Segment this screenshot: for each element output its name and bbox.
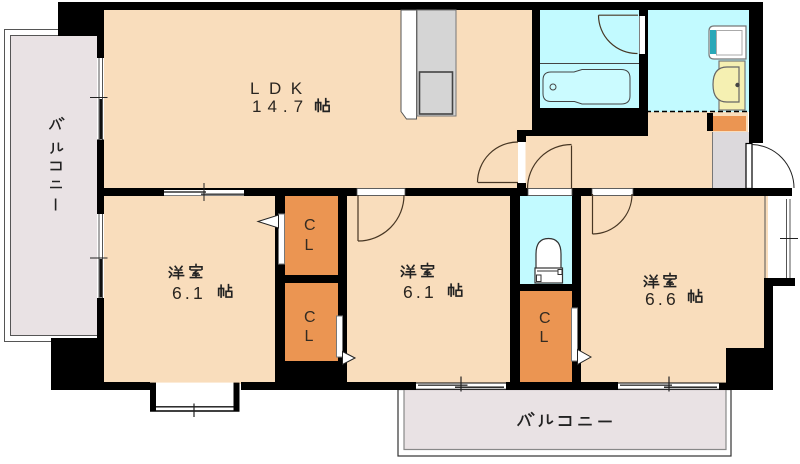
svg-text:6.1: 6.1 [403,282,437,302]
svg-text:6.1: 6.1 [172,283,206,303]
svg-text:L: L [305,328,314,345]
svg-text:14.7: 14.7 [252,97,309,116]
svg-text:C: C [304,309,316,326]
svg-text:C: C [539,310,551,327]
svg-text:L: L [305,237,314,254]
svg-text:LDK: LDK [250,79,312,98]
svg-text:L: L [540,329,549,346]
svg-text:6.6: 6.6 [645,289,679,309]
svg-text:C: C [304,217,316,234]
